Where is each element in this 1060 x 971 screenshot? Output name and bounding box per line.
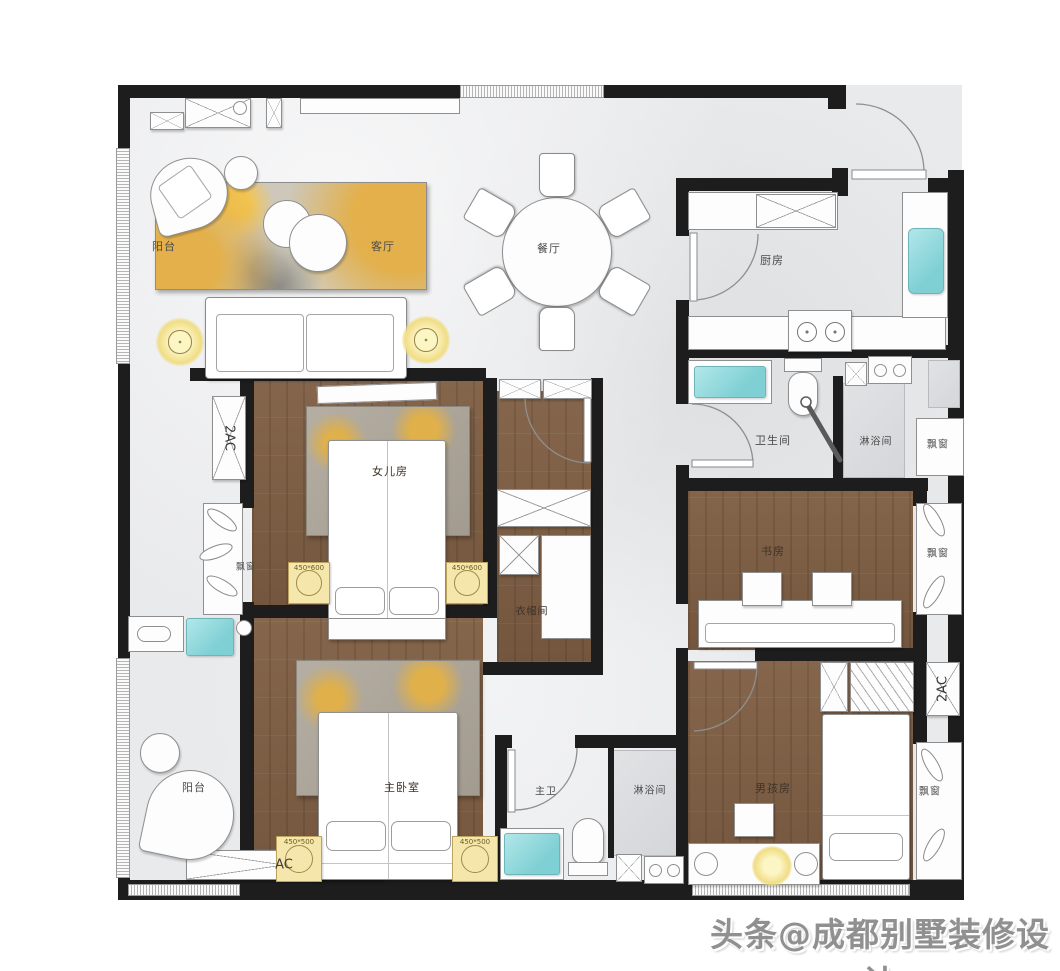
room-label-dining: 餐厅	[537, 240, 561, 256]
label-nightstand-size: 450*500	[284, 838, 314, 846]
wall-study-bay-top	[913, 478, 927, 506]
boy-bed	[822, 714, 910, 880]
room-label-mbath: 主卫	[535, 783, 557, 798]
bed-pillow	[829, 833, 903, 861]
toilet-tank-bottom	[568, 862, 608, 876]
hall-closet-x1	[499, 379, 541, 399]
bed-pillow	[389, 587, 439, 615]
room-label-shower-top: 淋浴间	[860, 433, 893, 448]
wall-shower-partition	[833, 376, 843, 478]
wall-mbath-top-b	[575, 735, 688, 748]
wall-boy-top	[755, 648, 925, 661]
room-label-bay-daughter: 飘窗	[236, 560, 256, 573]
bath-cabinet-x	[845, 362, 867, 386]
room-label-kitchen: 厨房	[760, 252, 784, 268]
cloak-cabinet	[541, 535, 591, 639]
hall-closet-x2	[543, 379, 592, 399]
study-chair	[812, 572, 852, 606]
window-bottom-left	[128, 884, 240, 896]
shower-top-floor	[843, 383, 905, 478]
window-left-upper	[116, 148, 130, 364]
label-ac-bottom: AC	[275, 858, 293, 873]
floor-lamp-right	[402, 316, 450, 364]
cloak-closet-side	[499, 535, 539, 575]
wall-bath-bottom	[676, 478, 928, 491]
bed-pillow	[335, 587, 385, 615]
room-label-bathroom: 卫生间	[755, 432, 791, 448]
sofa-seat-right	[306, 314, 394, 372]
room-label-daughter: 女儿房	[372, 463, 408, 479]
room-label-boy: 男孩房	[755, 780, 791, 796]
laundry-counter-top	[868, 356, 912, 384]
window-left-lower	[116, 658, 130, 878]
study-desk	[698, 600, 902, 648]
shower-cabinet-x	[616, 854, 642, 882]
window-top	[460, 85, 604, 98]
stove-burner	[825, 322, 845, 342]
floor-lamp-left	[156, 318, 204, 366]
room-label-bay-boy: 飘窗	[919, 783, 941, 798]
boy-wardrobe-x	[820, 662, 848, 712]
master-dresser	[328, 618, 446, 640]
lounge-ottoman	[224, 156, 258, 190]
kitchen-sink	[908, 228, 944, 294]
bed-pillow	[326, 821, 386, 851]
balcony-cabinet	[128, 616, 184, 652]
master-bed	[318, 712, 458, 880]
room-label-balcony-top: 阳台	[152, 238, 176, 254]
laundry-basin	[874, 364, 887, 377]
label-nightstand-size: 450*600	[294, 564, 324, 572]
boy-desk-stool	[794, 852, 818, 876]
dining-chair	[539, 153, 575, 197]
balcony-fixture	[236, 620, 252, 636]
bed-center-line	[388, 713, 389, 879]
kitchen-top-cabinet-x	[756, 194, 836, 228]
wall-study-left	[676, 478, 688, 604]
toilet-tank-top	[784, 358, 822, 372]
entry-cabinet-small	[150, 112, 184, 130]
sofa	[205, 297, 407, 379]
wall-entry-stub	[828, 85, 846, 109]
coffee-table-large	[289, 214, 347, 272]
balcony-side-table	[140, 733, 180, 773]
entry-cabinet-narrow	[266, 98, 282, 128]
wall-top-mid	[604, 85, 832, 98]
boy-desk-stool	[694, 852, 718, 876]
room-label-bay-study: 飘窗	[927, 545, 949, 560]
laundry-basin	[667, 864, 680, 877]
laundry-basin	[893, 364, 906, 377]
wall-boy-right	[913, 648, 927, 744]
room-label-balcony-bottom: 阳台	[182, 779, 206, 795]
window-bottom-right	[692, 884, 910, 896]
toilet-bowl-top	[788, 372, 818, 416]
stove-burner	[797, 322, 817, 342]
entry-appliance	[233, 101, 247, 115]
room-label-cloakroom: 衣帽间	[516, 603, 549, 618]
label-nightstand-size: 450*600	[452, 564, 482, 572]
mbath-sink	[504, 833, 560, 875]
balcony-cabinet-basin	[137, 626, 171, 642]
room-label-shower-bottom: 淋浴间	[634, 782, 667, 797]
shower-bottom-floor	[612, 750, 678, 856]
room-label-master: 主卧室	[384, 779, 420, 795]
sofa-seat-left	[216, 314, 304, 372]
wall-left-spine-b	[240, 602, 254, 888]
wall-top-left	[118, 85, 462, 98]
room-label-bay-bath: 飘窗	[927, 436, 949, 451]
bath-sink	[694, 366, 766, 398]
study-desk-top	[705, 623, 895, 643]
balcony-sink	[186, 618, 234, 656]
label-nightstand-size: 450*500	[460, 838, 490, 846]
toilet-bowl-bottom	[572, 818, 604, 864]
wall-cloak-right	[591, 378, 603, 675]
label-ac-right: 2AC	[936, 676, 951, 702]
dining-chair	[539, 307, 575, 351]
boy-desk-lamp-glow	[752, 846, 792, 886]
wall-kitchen-top	[683, 178, 843, 191]
wall-cloak-bottom	[483, 662, 603, 675]
laundry-counter-bottom	[644, 856, 684, 884]
boy-wardrobe	[850, 662, 914, 712]
wall-boy-left	[676, 648, 688, 888]
boy-chair	[734, 803, 774, 837]
study-chair	[742, 572, 782, 606]
bed-pillow	[391, 821, 451, 851]
room-label-living: 客厅	[371, 238, 395, 254]
bed-foot-line	[823, 815, 909, 816]
label-ac-left: 2AC	[222, 425, 237, 451]
wall-shower-bottom-partition	[608, 748, 614, 858]
cloak-closet-top	[497, 489, 591, 527]
kitchen-stove	[788, 310, 852, 352]
room-label-study: 书房	[761, 543, 785, 559]
laundry-basin	[649, 864, 662, 877]
entry-closet	[928, 360, 960, 408]
bay-window-boy	[916, 742, 962, 880]
wall-study-bay-bottom	[913, 612, 927, 652]
bed-foot-line	[319, 863, 457, 864]
watermark: 头条@成都别墅装修设计	[700, 908, 1060, 971]
tv-console	[300, 98, 460, 114]
floor-plan: 阳台 客厅 餐厅 厨房 卫生间 淋浴间 飘窗 女儿房 飘窗 衣帽间 书房 飘窗 …	[0, 0, 1060, 971]
